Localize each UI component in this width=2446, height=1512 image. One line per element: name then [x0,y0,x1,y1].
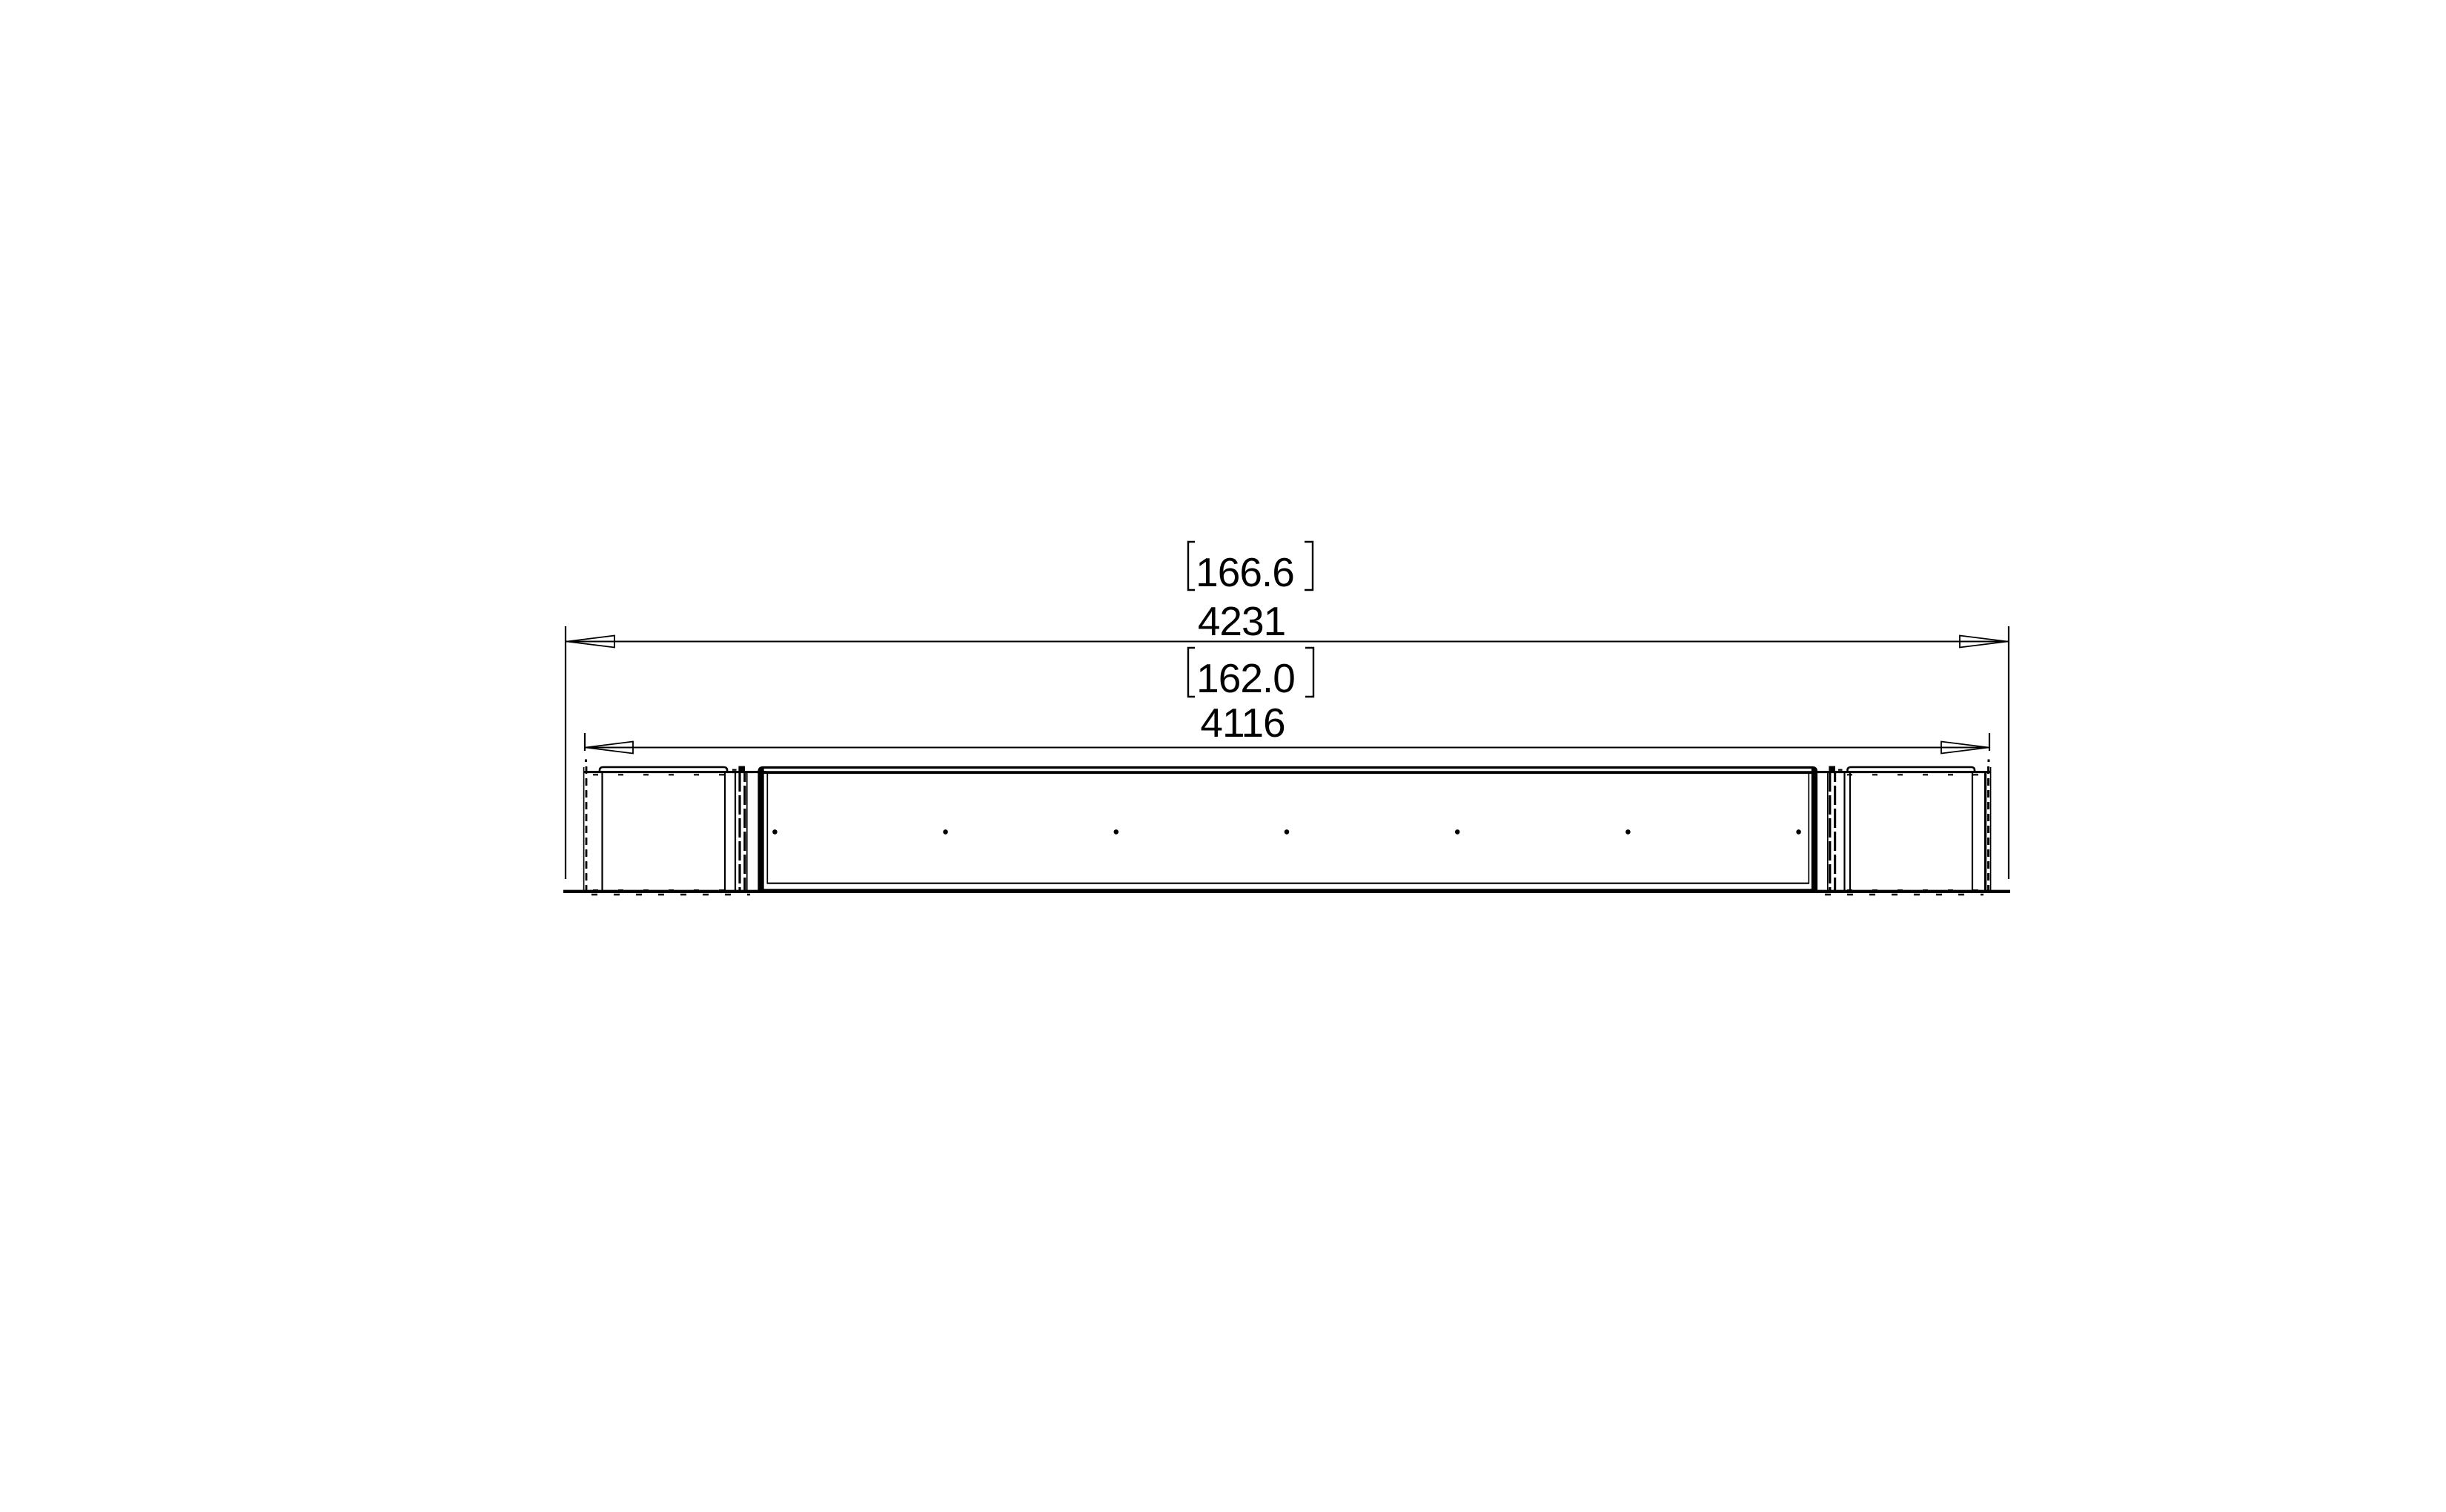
svg-text:4231: 4231 [1198,598,1285,644]
svg-text:166.6: 166.6 [1196,549,1294,595]
svg-text:4116: 4116 [1200,700,1285,746]
svg-text:162.0: 162.0 [1196,655,1295,701]
